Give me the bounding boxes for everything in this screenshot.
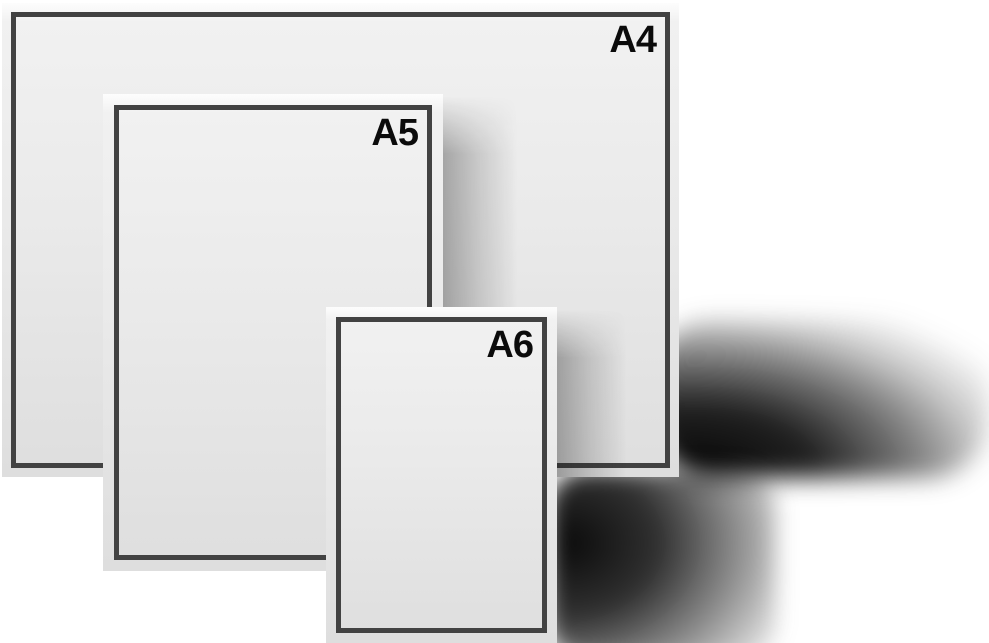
sheet-a5-label: A5 xyxy=(371,114,418,152)
wall-shadow-bottom-blob xyxy=(548,470,776,643)
paper-size-illustration: A4 A5 A6 xyxy=(0,0,989,643)
sheet-a4-label: A4 xyxy=(609,21,656,59)
sheet-a6: A6 xyxy=(326,307,557,643)
wall-shadow-right-blob xyxy=(652,320,988,478)
sheet-a6-frame: A6 xyxy=(336,317,547,633)
sheet-a6-label: A6 xyxy=(486,326,533,364)
